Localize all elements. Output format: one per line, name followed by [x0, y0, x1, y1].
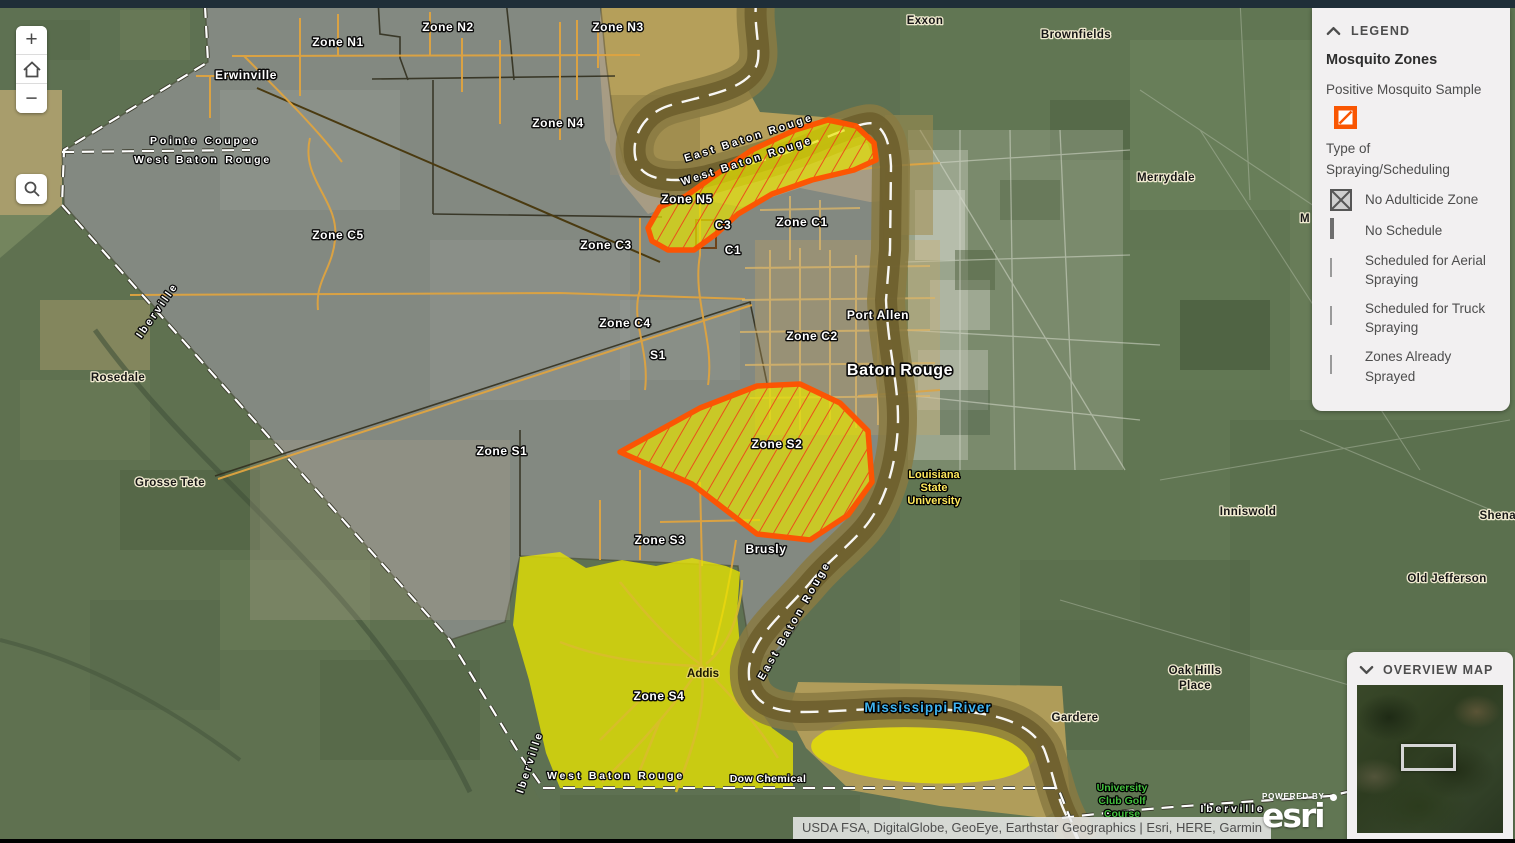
map-label: Merrydale	[1137, 172, 1195, 184]
esri-wordmark: esri	[1262, 799, 1337, 832]
map-label: Brownfields	[1041, 29, 1111, 41]
legend-item: Scheduled for Aerial Spraying	[1330, 251, 1496, 290]
zoom-in-button[interactable]: +	[16, 26, 47, 55]
map-label: Old Jefferson	[1407, 573, 1486, 585]
map-label: Iberville	[1201, 803, 1266, 815]
map-label: Zone C1	[776, 215, 828, 229]
legend-item-label: Scheduled for Aerial Spraying	[1365, 251, 1496, 290]
map-label: Inniswold	[1220, 506, 1277, 518]
legend-swatch-aerial	[1330, 259, 1352, 281]
map-label: Mississippi River	[864, 700, 991, 715]
map-label: C3	[715, 218, 732, 232]
map-application: Zone N1Zone N2Zone N3Zone N4Zone N5C3C1Z…	[0, 0, 1515, 843]
overview-map-panel: OVERVIEW MAP	[1347, 652, 1513, 843]
legend-layer-title: Mosquito Zones	[1326, 52, 1496, 68]
map-label: Gardere	[1052, 712, 1099, 724]
legend-item-label: Scheduled for Truck Spraying	[1365, 299, 1496, 338]
legend-items: No Adulticide ZoneNo ScheduleScheduled f…	[1312, 189, 1510, 386]
legend-swatch-sprayed	[1330, 356, 1352, 378]
legend-swatch-crosshatch	[1330, 189, 1352, 211]
overview-header[interactable]: OVERVIEW MAP	[1347, 652, 1513, 685]
home-button[interactable]	[16, 55, 47, 84]
map-label: Oak Hills	[1169, 665, 1222, 677]
overview-title: OVERVIEW MAP	[1383, 663, 1493, 677]
legend-title: LEGEND	[1351, 24, 1410, 38]
map-label: Grosse Tete	[135, 477, 205, 489]
map-label: Club Golf	[1098, 795, 1146, 807]
map-label: Rosedale	[91, 372, 145, 384]
legend-item: No Schedule	[1330, 220, 1496, 242]
overview-thumbnail[interactable]	[1357, 685, 1503, 833]
map-label: Place	[1179, 680, 1211, 692]
chevron-down-icon	[1359, 665, 1374, 675]
legend-swatch-no-schedule	[1330, 220, 1352, 242]
map-label: Zone C5	[312, 228, 364, 242]
legend-swatch-truck	[1330, 307, 1352, 329]
legend-item: Scheduled for Truck Spraying	[1330, 299, 1496, 338]
map-label: Baton Rouge	[847, 362, 953, 379]
home-icon	[22, 60, 42, 79]
map-label: Dow Chemical	[730, 773, 807, 785]
legend-item-label: Zones Already Sprayed	[1365, 347, 1496, 386]
map-label: Zone N4	[532, 116, 584, 130]
bottom-bar	[0, 839, 1515, 843]
map-label: C1	[725, 243, 742, 257]
map-label: University	[1097, 782, 1148, 794]
legend-header[interactable]: LEGEND	[1312, 18, 1510, 50]
top-bar	[0, 0, 1515, 8]
legend-item: Zones Already Sprayed	[1330, 347, 1496, 386]
spraying-group-title: Type of Spraying/Scheduling	[1326, 139, 1486, 180]
map-label: Shenandoah	[1479, 510, 1515, 522]
zoom-controls: + −	[16, 26, 47, 113]
map-label: M	[1300, 213, 1310, 225]
map-canvas[interactable]: Zone N1Zone N2Zone N3Zone N4Zone N5C3C1Z…	[0, 0, 1515, 843]
legend-item-label: No Schedule	[1365, 221, 1442, 241]
legend-item-label: No Adulticide Zone	[1365, 190, 1478, 210]
map-label: S1	[650, 348, 666, 362]
positive-sample-swatch	[1334, 106, 1357, 129]
map-label: Erwinville	[215, 68, 277, 82]
esri-globe-icon	[1330, 794, 1337, 801]
map-label: West Baton Rouge	[134, 154, 272, 166]
positive-sample-label: Positive Mosquito Sample	[1326, 80, 1486, 100]
map-label: Zone S1	[477, 444, 528, 458]
map-label: University	[907, 495, 961, 507]
map-label: Exxon	[907, 15, 944, 27]
map-label: Zone N5	[661, 192, 713, 206]
map-label: Zone C3	[580, 238, 632, 252]
map-label: Brusly	[746, 542, 787, 556]
overview-extent-box[interactable]	[1401, 744, 1456, 771]
search-button[interactable]	[16, 174, 47, 204]
map-label: Zone C2	[786, 329, 838, 343]
map-label: Zone S3	[635, 533, 686, 547]
map-label: Louisiana	[908, 469, 960, 481]
esri-logo[interactable]: POWERED BY esri	[1262, 793, 1337, 832]
map-label: Addis	[687, 668, 719, 680]
chevron-up-icon	[1326, 26, 1341, 36]
zoom-out-button[interactable]: −	[16, 84, 47, 113]
map-label: Zone N2	[422, 20, 474, 34]
attribution-bar: USDA FSA, DigitalGlobe, GeoEye, Earthsta…	[793, 817, 1271, 839]
map-label: Zone C4	[599, 316, 651, 330]
search-icon	[23, 180, 41, 198]
map-label: Port Allen	[847, 308, 909, 322]
legend-item: No Adulticide Zone	[1330, 189, 1496, 211]
map-label: Pointe Coupee	[150, 135, 260, 147]
map-label: State	[921, 482, 948, 494]
map-label: Zone S2	[752, 437, 803, 451]
map-label: Zone N1	[312, 35, 364, 49]
map-label: Zone N3	[592, 20, 644, 34]
map-label: Zone S4	[634, 689, 685, 703]
legend-panel: LEGEND Mosquito Zones Positive Mosquito …	[1312, 8, 1510, 411]
map-label: West Baton Rouge	[547, 770, 685, 782]
